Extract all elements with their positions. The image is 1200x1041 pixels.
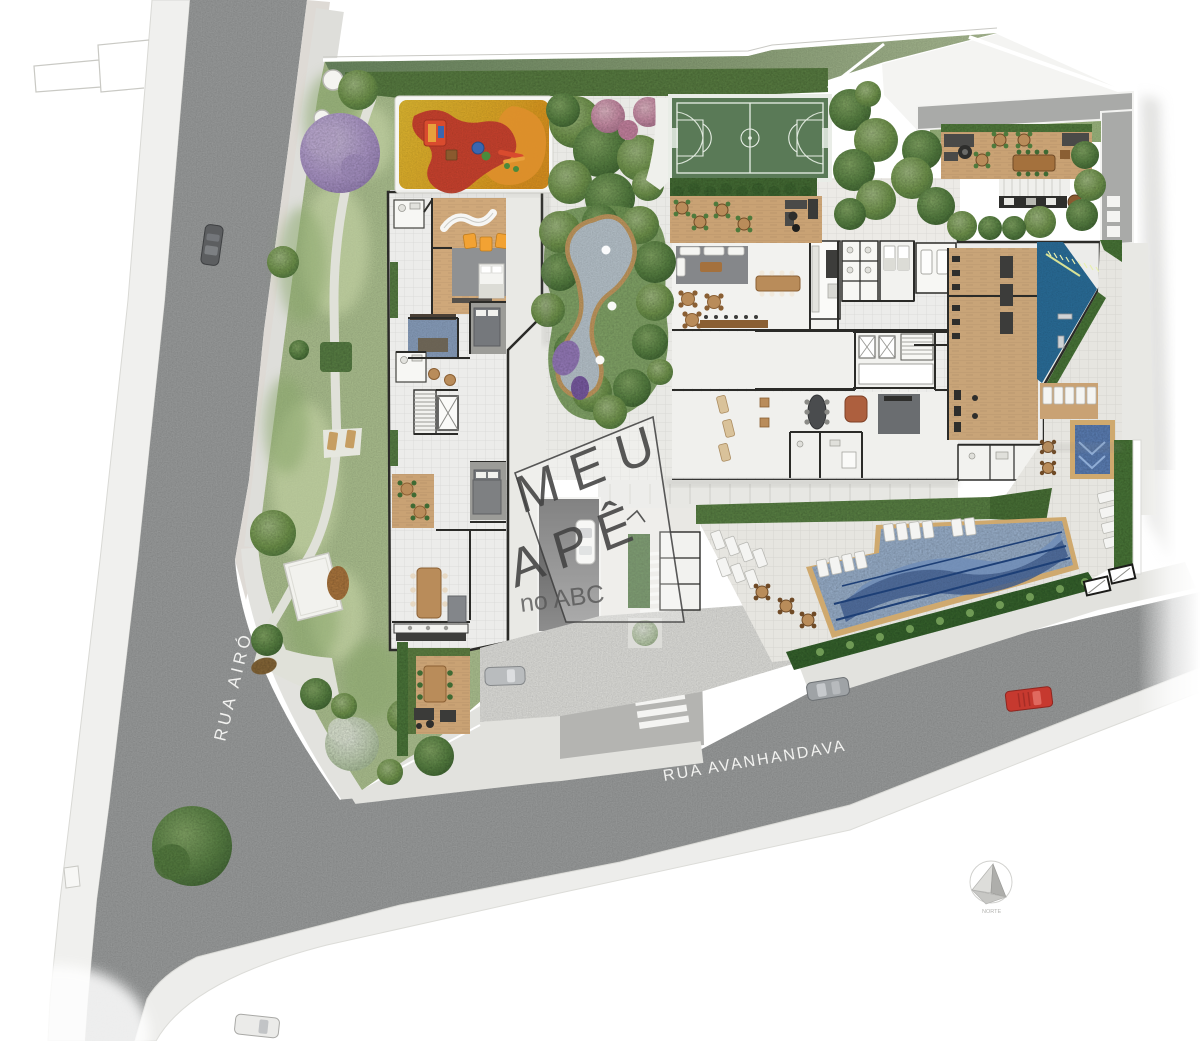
svg-text:NORTE: NORTE: [982, 909, 1001, 915]
